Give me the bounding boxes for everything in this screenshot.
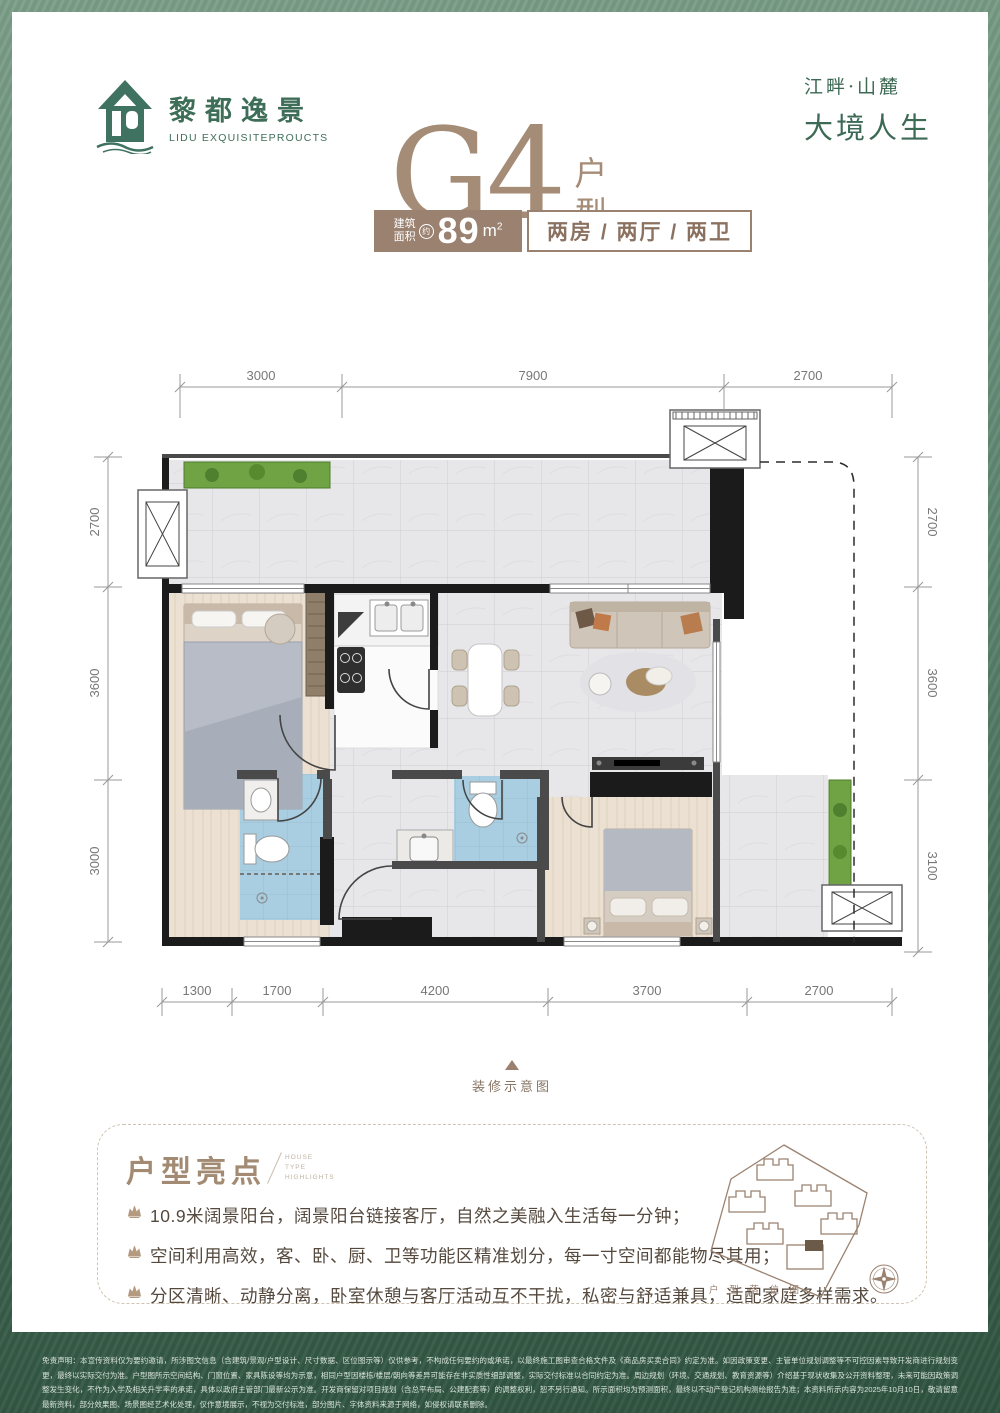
planter-terrace bbox=[829, 780, 851, 890]
building-outline bbox=[795, 1185, 831, 1206]
approx-badge: 约 bbox=[419, 224, 434, 239]
svg-text:1700: 1700 bbox=[263, 983, 292, 998]
building-outline bbox=[757, 1159, 793, 1180]
svg-text:3100: 3100 bbox=[925, 852, 940, 881]
tv-console bbox=[592, 757, 704, 770]
coffee-table bbox=[589, 673, 611, 695]
highlights-header: 户型亮点 HOUSE TYPE HIGHLIGHTS bbox=[126, 1147, 335, 1191]
svg-text:2700: 2700 bbox=[925, 508, 940, 537]
ac-unit-bottom-right bbox=[822, 885, 902, 931]
svg-text:4200: 4200 bbox=[421, 983, 450, 998]
crown-bullet-icon bbox=[128, 1206, 141, 1218]
building-outline bbox=[729, 1191, 765, 1212]
pouf bbox=[265, 614, 295, 644]
highlights-subtitle: HOUSE TYPE HIGHLIGHTS bbox=[285, 1153, 335, 1182]
svg-text:3600: 3600 bbox=[87, 669, 102, 698]
compass-icon bbox=[870, 1265, 898, 1293]
floor-plan: 3000 7900 2700 1300 1700 4200 3700 2700 … bbox=[72, 342, 952, 1037]
svg-text:3700: 3700 bbox=[633, 983, 662, 998]
poster-page: 黎都逸景 LIDU EXQUISITEPROUCTS 江畔·山麓 大境人生 G4… bbox=[0, 0, 1000, 1413]
highlights-title: 户型亮点 bbox=[126, 1147, 266, 1191]
bath2-floor bbox=[454, 776, 542, 864]
building-outline bbox=[821, 1213, 857, 1234]
highlighted-building bbox=[787, 1240, 823, 1269]
area-unit: m2 bbox=[483, 221, 503, 241]
highlights-box: 户型亮点 HOUSE TYPE HIGHLIGHTS 10.9米阔景阳台，阔景阳… bbox=[97, 1124, 927, 1304]
content-panel: 黎都逸景 LIDU EXQUISITEPROUCTS 江畔·山麓 大境人生 G4… bbox=[12, 12, 988, 1332]
slogan-line1: 江畔·山麓 bbox=[804, 72, 932, 99]
ac-unit-left bbox=[138, 490, 187, 578]
crown-bullet-icon bbox=[128, 1286, 141, 1298]
site-map: 户 型 落 位 图 bbox=[699, 1133, 914, 1320]
site-boundary bbox=[711, 1145, 867, 1297]
triangle-up-icon bbox=[505, 1060, 519, 1070]
svg-text:3000: 3000 bbox=[247, 368, 276, 383]
svg-text:2700: 2700 bbox=[87, 508, 102, 537]
slash-divider bbox=[267, 1152, 282, 1183]
svg-text:3600: 3600 bbox=[925, 669, 940, 698]
area-box: 建筑 面积 约 89 m2 bbox=[374, 210, 522, 252]
plan-caption: 装修示意图 bbox=[12, 1060, 1000, 1095]
svg-text:1300: 1300 bbox=[183, 983, 212, 998]
footer-band: 免责声明：本宣传资料仅为要约邀请，所涉图文信息（含建筑/景观/户型设计、尺寸数据… bbox=[0, 1332, 1000, 1413]
svg-text:2700: 2700 bbox=[794, 368, 823, 383]
svg-text:7900: 7900 bbox=[519, 368, 548, 383]
area-label: 建筑 面积 bbox=[394, 218, 416, 243]
stove bbox=[337, 647, 365, 693]
site-map-label: 户 型 落 位 图 bbox=[709, 1284, 803, 1296]
terrace-floor bbox=[722, 775, 828, 942]
disclaimer-text: 免责声明：本宣传资料仅为要约邀请，所涉图文信息（含建筑/景观/户型设计、尺寸数据… bbox=[42, 1354, 958, 1413]
svg-text:2700: 2700 bbox=[805, 983, 834, 998]
floor-plan-drawing: 3000 7900 2700 1300 1700 4200 3700 2700 … bbox=[72, 342, 952, 1032]
svg-text:3000: 3000 bbox=[87, 847, 102, 876]
planter-top bbox=[184, 462, 330, 488]
kitchen-counter bbox=[334, 594, 438, 646]
sofa bbox=[570, 602, 710, 648]
crown-bullet-icon bbox=[128, 1246, 141, 1258]
building-outline bbox=[747, 1223, 783, 1244]
area-banner: 建筑 面积 约 89 m2 两房 / 两厅 / 两卫 bbox=[374, 210, 752, 252]
site-map-drawing: 户 型 落 位 图 bbox=[699, 1133, 914, 1315]
area-value: 89 bbox=[438, 210, 480, 252]
ac-unit-top bbox=[670, 410, 760, 468]
layout-box: 两房 / 两厅 / 两卫 bbox=[527, 210, 752, 252]
stone-table-top bbox=[646, 667, 672, 685]
